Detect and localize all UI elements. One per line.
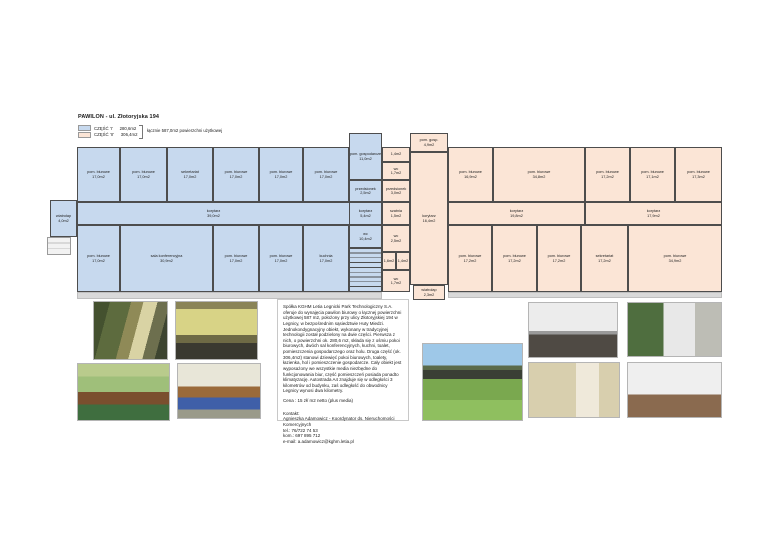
room-pom-biurowe: pom. biurowe17,2m2 [537, 225, 581, 292]
room-pom-gosp: pom. gosp.4,9m2 [410, 133, 448, 152]
contact-email: e-mail: a.adamowicz@kghm.letia.pl [283, 439, 403, 445]
room-wc: wc10,4m2 [349, 225, 382, 248]
room-area: 17,2m2 [598, 259, 611, 263]
room-area: 17,0m2 [230, 175, 243, 179]
room-area: 16,4m2 [423, 219, 436, 223]
photo-corridor-white [528, 302, 618, 358]
room-area: 17,2m2 [553, 259, 566, 263]
room-area: 17,0m2 [320, 175, 333, 179]
room-sekretariat: sekretariat17,2m2 [581, 225, 628, 292]
room-wc: wc1,7m2 [382, 162, 410, 180]
room-area: 34,8m2 [533, 175, 546, 179]
room-pom-biurowe: pom. biurowe17,2m2 [585, 147, 630, 202]
room-area: 2,3m2 [424, 293, 435, 297]
room-wiatro-ap: wiatrołap2,3m2 [413, 285, 445, 300]
floor-plan: pom. biurowe17,0m2pom. biurowe17,0m2sekr… [0, 0, 768, 543]
room-area: 17,2m2 [464, 259, 477, 263]
room-przedsionek: przedsionek3,0m2 [382, 180, 410, 202]
room-korytarz: korytarz39,0m2 [77, 202, 350, 225]
room-sala-konferencyjna: sala konferencyjna30,9m2 [120, 225, 213, 292]
room-area: 17,0m2 [137, 175, 150, 179]
room-klatka-schodowa [349, 248, 382, 292]
contact-person: Agnieszka Adamowicz - Koordynator ds. Ni… [283, 416, 403, 427]
room-szatnia: szatnia1,5m2 [382, 202, 410, 225]
room-korytarz: korytarz5,4m2 [349, 202, 382, 225]
room-area: 4,0m2 [58, 219, 69, 223]
offer-sheet: PAWILON - ul. Złotoryjska 194 CZĘŚĆ 'I' … [0, 0, 768, 543]
room-pom-gospodarcze: pom. gospodarcze11,0m2 [349, 133, 382, 180]
room-area: 17,0m2 [92, 259, 105, 263]
room-area: 17,0m2 [275, 175, 288, 179]
room-pom-biurowe: pom. biurowe17,0m2 [120, 147, 167, 202]
room-pom-biurowe: pom. biurowe17,1m2 [630, 147, 675, 202]
room-pom-biurowe: pom. biurowe16,9m2 [448, 147, 493, 202]
room-pom-biurowe: pom. biurowe17,0m2 [77, 225, 120, 292]
room-pom-biurowe: pom. biurowe17,3m2 [675, 147, 722, 202]
room-wc: wc1,7m2 [382, 270, 410, 292]
photo-conference-green [77, 363, 170, 421]
room-area: 17,0m2 [275, 259, 288, 263]
room-pom-biurowe: pom. biurowe17,2m2 [492, 225, 537, 292]
room-pom-biurowe: pom. biurowe17,0m2 [213, 225, 259, 292]
room-area: 2,5m2 [360, 191, 371, 195]
room-pom: 1,4m2 [396, 252, 410, 270]
room-pom-biurowe: pom. biurowe17,0m2 [259, 225, 303, 292]
room-area: 1,7m2 [391, 281, 402, 285]
room-area: 30,9m2 [160, 259, 173, 263]
photo-meeting-blue-chairs [177, 363, 261, 419]
room-area: 1,6m2 [384, 259, 395, 263]
photo-empty-room [627, 362, 722, 418]
room-area: 4,9m2 [424, 143, 435, 147]
room-area: 3,0m2 [391, 191, 402, 195]
room-area: 39,0m2 [207, 214, 220, 218]
room-area: 1,4m2 [398, 259, 409, 263]
room-pom-biurowe: pom. biurowe17,0m2 [259, 147, 303, 202]
room-area: 1,7m2 [391, 171, 402, 175]
room-pom: 1,4m2 [382, 147, 410, 162]
room-area: 34,9m2 [669, 259, 682, 263]
room-pom-biurowe: pom. biurowe17,2m2 [448, 225, 492, 292]
entrance-steps [47, 237, 71, 255]
room-area: 16,9m2 [464, 175, 477, 179]
photo-entrance [627, 302, 722, 357]
room-pom-biurowe: pom. biurowe17,0m2 [77, 147, 120, 202]
room-wc: wc2,5m2 [382, 225, 410, 252]
room-area: 5,4m2 [360, 214, 371, 218]
room-przedsionek: przedsionek2,5m2 [349, 180, 382, 202]
room-area: 17,9m2 [647, 214, 660, 218]
photo-corridor-yellow [175, 301, 258, 360]
room-pom-biurowe: pom. biurowe17,0m2 [213, 147, 259, 202]
room-area: 17,1m2 [646, 175, 659, 179]
room-area: 17,3m2 [692, 175, 705, 179]
room-wiatro-ap: wiatrołap4,0m2 [50, 200, 77, 237]
room-area: 17,0m2 [184, 175, 197, 179]
offer-paragraph: Spółka KGHM Letia Legnicki Park Technolo… [283, 304, 403, 394]
room-kuchnia: kuchnia17,0m2 [303, 225, 349, 292]
room-area: 19,8m2 [510, 214, 523, 218]
room-area: 1,4m2 [391, 152, 402, 156]
room-area: 11,0m2 [359, 157, 371, 161]
room-area: 17,0m2 [320, 259, 333, 263]
room-area: 1,5m2 [391, 214, 402, 218]
room-pom-biurowe: pom. biurowe34,8m2 [493, 147, 585, 202]
photo-exterior-trees [93, 301, 168, 360]
photo-building-lawn [422, 343, 523, 421]
room-area: 2,5m2 [391, 239, 402, 243]
room-pom-biurowe: pom. biurowe17,0m2 [303, 147, 349, 202]
room-area: 17,0m2 [92, 175, 105, 179]
photo-bathroom [528, 362, 620, 418]
pavement-section2 [448, 292, 722, 298]
room-area: 17,0m2 [230, 259, 243, 263]
room-korytarz: korytarz16,4m2 [410, 152, 448, 285]
price-line: Cena : 15 zł/ m2 netto (plus media) [283, 398, 403, 404]
room-area: 17,2m2 [601, 175, 614, 179]
room-korytarz: korytarz17,9m2 [585, 202, 722, 225]
room-korytarz: korytarz19,8m2 [448, 202, 585, 225]
description-box: Spółka KGHM Letia Legnicki Park Technolo… [277, 299, 409, 421]
room-sekretariat: sekretariat17,0m2 [167, 147, 213, 202]
pavement-section1 [77, 292, 382, 299]
room-area: 17,2m2 [508, 259, 521, 263]
room-pom: 1,6m2 [382, 252, 396, 270]
room-area: 10,4m2 [359, 237, 372, 241]
room-pom-biurowe: pom. biurowe34,9m2 [628, 225, 722, 292]
